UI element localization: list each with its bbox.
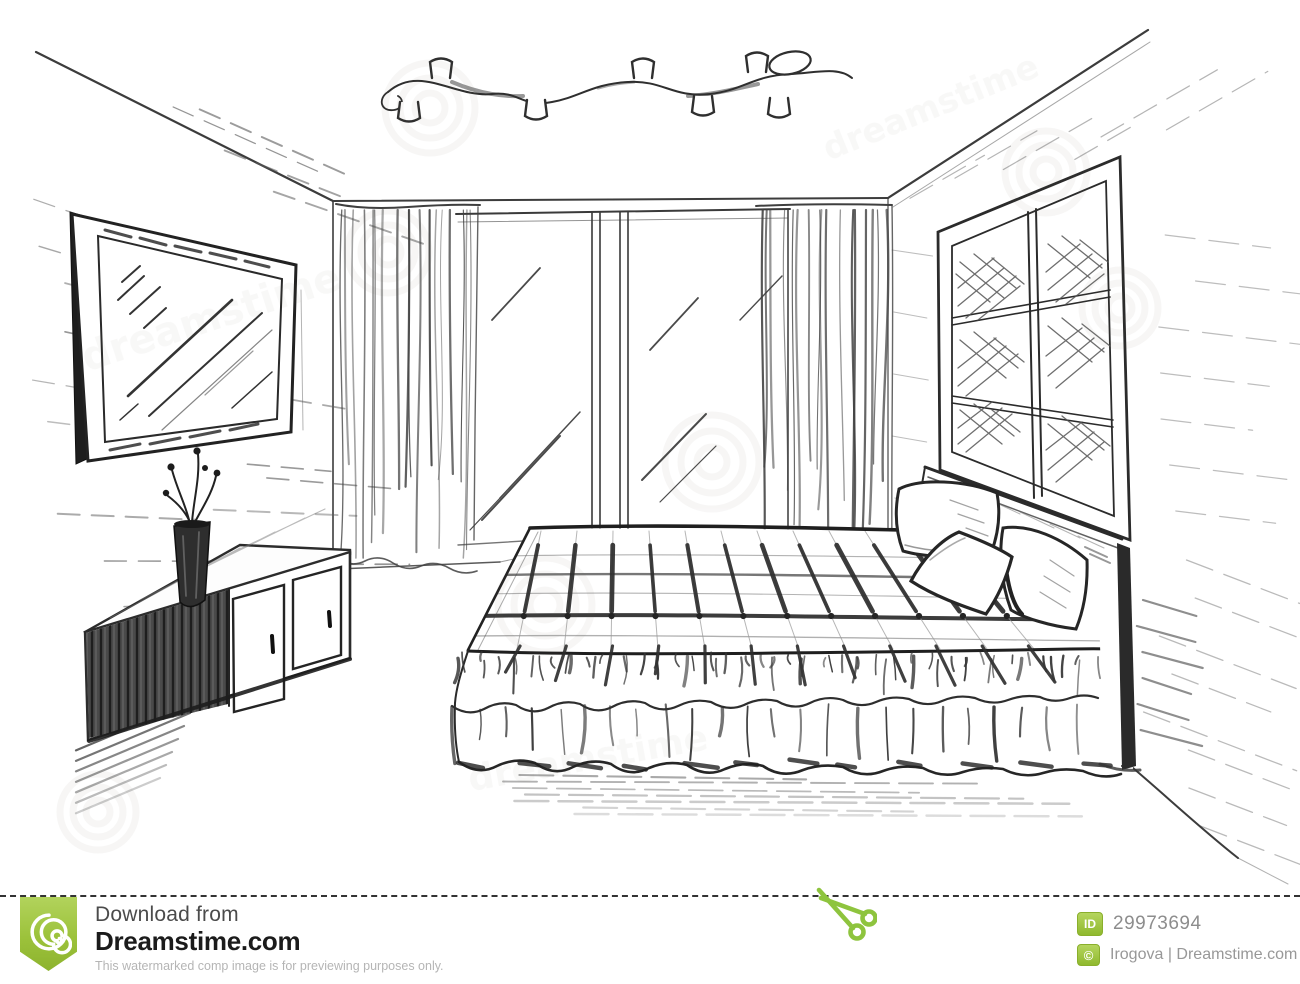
cut-dashed-line	[0, 895, 1300, 897]
bedroom-sketch: dreamstime dreamstime dreamstime	[0, 0, 1300, 893]
door-glass-reflections	[470, 268, 782, 530]
copyright-badge: ©	[1077, 944, 1100, 966]
id-badge: ID	[1077, 912, 1103, 936]
dreamstime-preview-page: dreamstime dreamstime dreamstime Downloa…	[0, 0, 1300, 984]
download-text-block: Download from Dreamstime.com This waterm…	[95, 904, 444, 973]
image-id-number: 29973694	[1113, 913, 1202, 935]
bed-floor-shadow	[503, 775, 1082, 816]
download-from-label: Download from	[95, 904, 444, 925]
curtain-left	[336, 204, 480, 573]
dreamstime-watermark-footer: Download from Dreamstime.com This waterm…	[0, 893, 1300, 984]
credit-row: © Irogova | Dreamstime.com	[1077, 944, 1297, 966]
dreamstime-logo	[20, 897, 77, 971]
tv-cabinet	[85, 509, 350, 741]
scissors-icon	[815, 884, 877, 944]
brand-name: Dreamstime.com	[95, 928, 444, 954]
svg-text:dreamstime: dreamstime	[465, 717, 711, 800]
image-id-row: ID 29973694	[1077, 912, 1202, 936]
author-credit: Irogova | Dreamstime.com	[1110, 946, 1297, 964]
curtain-right	[756, 204, 897, 569]
bedroom-sketch-image: dreamstime dreamstime dreamstime	[0, 0, 1300, 893]
watermark-disclaimer: This watermarked comp image is for previ…	[95, 960, 444, 973]
dreamstime-spiral-icon	[26, 906, 72, 958]
